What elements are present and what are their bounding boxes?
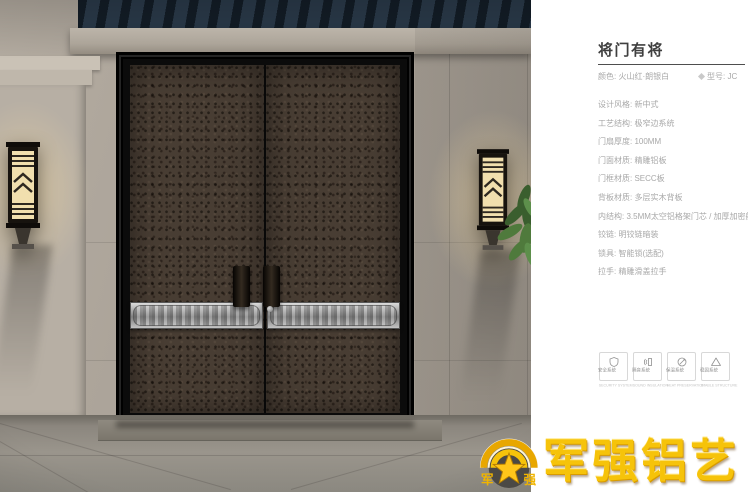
feature-label: 保温系统: [661, 368, 688, 373]
insulation-icon: [676, 356, 688, 368]
spec-item: 门框材质: SECC板: [598, 170, 748, 189]
feature-subtext: SECURITY SYSTEM: [599, 384, 628, 388]
stability-icon: [710, 356, 722, 368]
feature-box: 安全系统: [599, 352, 628, 381]
spec-list: 设计风格: 新中式 工艺结构: 极窄边系统 门扇厚度: 100MM 门面材质: …: [598, 96, 748, 282]
color-label: 颜色: 火山红·朗银白: [598, 71, 669, 82]
shield-icon: [608, 356, 620, 368]
feature-label: 稳固系统: [695, 368, 722, 373]
wall-lamp-left: [6, 140, 40, 257]
entrance-photo: [0, 0, 531, 492]
spec-item: 背板材质: 多层实木背板: [598, 189, 748, 208]
spec-item: 工艺结构: 极窄边系统: [598, 115, 748, 134]
plant: [486, 180, 531, 280]
column-capital: [0, 70, 92, 85]
door-handle-left: [233, 266, 250, 307]
brand-emblem-icon: 军 强: [478, 425, 540, 491]
model-label: 型号: JC: [699, 71, 737, 82]
double-door: [130, 65, 400, 413]
feature-subtext: STABLE STRUCTURE: [701, 384, 730, 388]
product-title: 将门有将: [598, 39, 664, 60]
emblem-left-char: 军: [481, 473, 494, 487]
diamond-icon: [698, 73, 705, 80]
feature-box: 隔音系统: [633, 352, 662, 381]
feature-stability: 稳固系统 STABLE STRUCTURE: [701, 352, 730, 392]
lock-knob: [267, 306, 273, 312]
feature-label: 安全系统: [593, 368, 620, 373]
spec-item: 锁具: 智能锁(选配): [598, 245, 748, 264]
feature-security: 安全系统 SECURITY SYSTEM: [599, 352, 628, 392]
feature-badges: 安全系统 SECURITY SYSTEM 隔音系统 SOUND INSULATI…: [599, 352, 730, 392]
feature-subtext: HEAT PRESERVATION: [667, 384, 696, 388]
door-leaf-right: [266, 65, 400, 413]
spec-item: 内结构: 3.5MM太空铝格架门芯 / 加厚加密航空铝蜂: [598, 208, 748, 227]
spec-item: 拉手: 精雕滑盖拉手: [598, 263, 748, 282]
spec-item: 门面材质: 精雕铝板: [598, 152, 748, 171]
floor-grout-line: [0, 455, 531, 456]
spec-item: 铰链: 明铰链暗装: [598, 226, 748, 245]
model-text: 型号: JC: [707, 72, 737, 81]
floor-grout-line: [0, 441, 130, 492]
brand-logo: 军 强 军强铝艺: [478, 424, 739, 492]
plant-leaves-icon: [486, 180, 531, 275]
brand-name: 军强铝艺: [543, 425, 739, 491]
ceiling-rafters: [78, 0, 531, 30]
feature-soundproof: 隔音系统 SOUND INSULATION: [633, 352, 662, 392]
feature-box: 稳固系统: [701, 352, 730, 381]
spec-item: 门扇厚度: 100MM: [598, 133, 748, 152]
decorative-band-right: [267, 302, 400, 329]
title-divider: [598, 64, 745, 65]
feature-box: 保温系统: [667, 352, 696, 381]
soundproof-icon: [642, 356, 654, 368]
door-handle-right: [263, 266, 280, 307]
column-capital: [0, 56, 100, 70]
feature-insulation: 保温系统 HEAT PRESERVATION: [667, 352, 696, 392]
emblem-right-char: 强: [524, 473, 537, 487]
feature-subtext: SOUND INSULATION: [633, 384, 662, 388]
lantern-icon: [6, 140, 40, 252]
product-sheet: 将门有将 颜色: 火山红·朗银白 型号: JC 设计风格: 新中式 工艺结构: …: [0, 0, 748, 492]
feature-label: 隔音系统: [627, 368, 654, 373]
door-leaf-left: [130, 65, 266, 413]
door-shadow: [116, 421, 414, 428]
spec-item: 设计风格: 新中式: [598, 96, 748, 115]
